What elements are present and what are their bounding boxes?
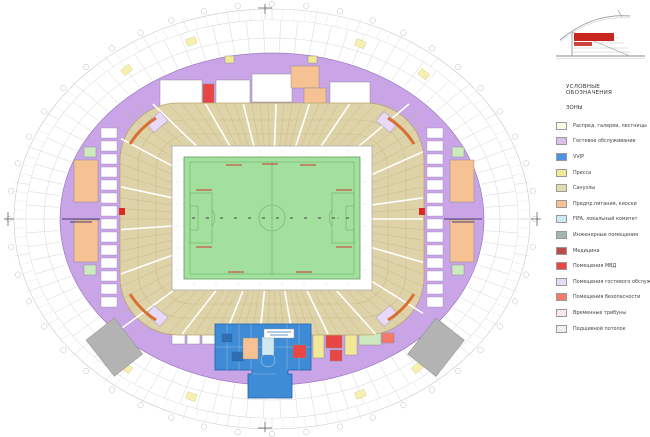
legend-item: FIFA, локальный комитет (556, 212, 648, 228)
stadium-section-thumbnail (552, 8, 648, 68)
legend-item: Медицина (556, 243, 648, 259)
legend-color-swatch (556, 215, 567, 223)
legend-item-label: Распред. галереи, лестницы (573, 123, 647, 129)
legend-color-swatch (556, 169, 567, 177)
legend-color-swatch (556, 184, 567, 192)
legend-item: Инженерные помещения (556, 227, 648, 243)
legend: УСЛОВНЫЕ ОБОЗНАЧЕНИЯ ЗОНЫ Распред. галер… (556, 84, 648, 336)
legend-item-label: FIFA, локальный комитет (573, 216, 637, 222)
legend-item: VVIP (556, 149, 648, 165)
legend-items: Распред. галереи, лестницы Гостевое обсл… (556, 118, 648, 336)
legend-item: Санузлы (556, 180, 648, 196)
legend-item-label: Санузлы (573, 185, 595, 191)
red-marker-right (419, 208, 425, 215)
red-marker-left (119, 208, 125, 215)
legend-item: Временные трибуны (556, 305, 648, 321)
legend-color-swatch (556, 200, 567, 208)
legend-item: Подшивной потолок (556, 321, 648, 337)
legend-item: Помещения безопасности (556, 290, 648, 306)
legend-item-label: Временные трибуны (573, 310, 626, 316)
stadium-floor-plan-sheet: { "legend": { "title": "УСЛОВНЫЕ ОБОЗНАЧ… (0, 0, 650, 437)
legend-color-swatch (556, 247, 567, 255)
legend-item: Помещения гостевого обслуживания (556, 274, 648, 290)
legend-item-label: Гостевое обслуживание (573, 138, 636, 144)
legend-color-swatch (556, 309, 567, 317)
legend-color-swatch (556, 153, 567, 161)
legend-color-swatch (556, 325, 567, 333)
legend-color-swatch (556, 278, 567, 286)
legend-item-label: Помещения МВД (573, 263, 616, 269)
legend-item: Гостевое обслуживание (556, 134, 648, 150)
legend-item: Помещения МВД (556, 258, 648, 274)
legend-color-swatch (556, 293, 567, 301)
legend-item-label: Помещения гостевого обслуживания (573, 279, 650, 285)
legend-item-label: Инженерные помещения (573, 232, 638, 238)
legend-subtitle: ЗОНЫ (566, 105, 648, 111)
legend-item: Предпр.питания, киоски (556, 196, 648, 212)
legend-item-label: Медицина (573, 248, 600, 254)
legend-color-swatch (556, 262, 567, 270)
legend-item: Пресса (556, 165, 648, 181)
legend-color-swatch (556, 122, 567, 130)
legend-item-label: VVIP (573, 154, 584, 160)
legend-item: Распред. галереи, лестницы (556, 118, 648, 134)
legend-item-label: Пресса (573, 170, 591, 176)
legend-color-swatch (556, 231, 567, 239)
current-level-highlight (574, 33, 614, 41)
legend-item-label: Подшивной потолок (573, 326, 626, 332)
legend-color-swatch (556, 137, 567, 145)
legend-item-label: Предпр.питания, киоски (573, 201, 637, 207)
legend-title: УСЛОВНЫЕ ОБОЗНАЧЕНИЯ (566, 84, 648, 96)
legend-item-label: Помещения безопасности (573, 294, 640, 300)
